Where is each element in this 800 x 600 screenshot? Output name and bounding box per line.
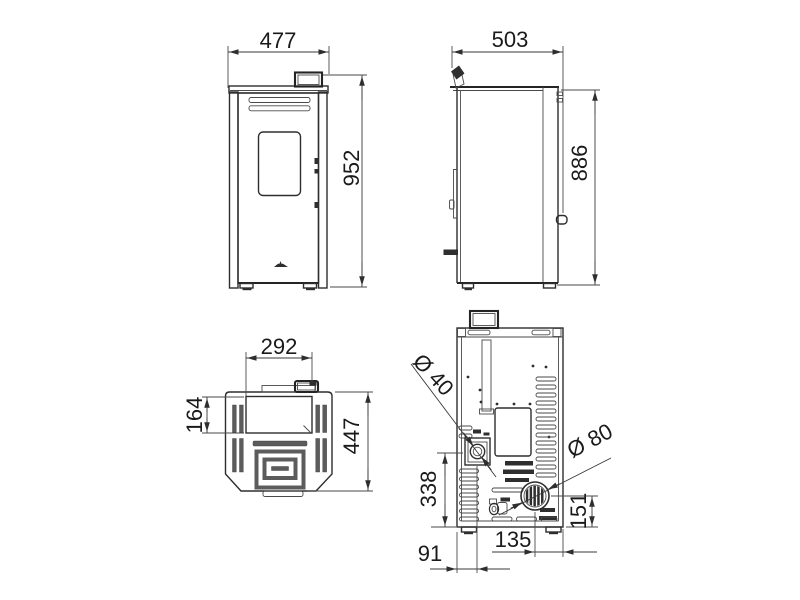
side-feet bbox=[463, 284, 556, 291]
side-door-edge bbox=[450, 170, 458, 219]
dim-label-inlet-offset: 91 bbox=[418, 543, 442, 565]
back-screw-dots bbox=[465, 365, 551, 439]
front-logo-mark bbox=[274, 261, 288, 267]
front-view bbox=[229, 73, 328, 291]
side-handle bbox=[451, 66, 465, 89]
back-drain-fitting bbox=[489, 498, 510, 515]
dim-label-hopper-width: 292 bbox=[261, 336, 298, 358]
front-side-panel-right bbox=[319, 92, 328, 288]
dim-label-hopper-depth: 164 bbox=[184, 397, 206, 434]
top-hopper-lid bbox=[246, 397, 312, 434]
front-side-panel-left bbox=[230, 92, 239, 288]
back-flue-outlet bbox=[521, 482, 549, 510]
top-rear-tab bbox=[263, 491, 303, 497]
side-scraper-handle bbox=[444, 250, 459, 256]
back-view bbox=[457, 311, 563, 534]
dim-label-flue-offset: 135 bbox=[495, 529, 532, 551]
front-door-window bbox=[259, 132, 301, 196]
dim-label-front-width: 477 bbox=[260, 30, 297, 52]
dim-label-side-depth: 503 bbox=[492, 29, 529, 51]
dim-label-inlet-height: 338 bbox=[418, 471, 440, 508]
side-view bbox=[444, 66, 568, 291]
front-vent-slots bbox=[249, 98, 310, 111]
dim-label-top-depth: 447 bbox=[341, 418, 363, 455]
dim-label-side-height: 886 bbox=[569, 145, 591, 182]
back-air-inlet bbox=[465, 438, 490, 465]
top-center-grille bbox=[253, 441, 307, 488]
top-view bbox=[226, 381, 333, 497]
drawing-linework bbox=[0, 0, 800, 600]
front-body bbox=[238, 93, 319, 283]
dim-label-front-height: 952 bbox=[341, 150, 363, 187]
back-access-opening bbox=[495, 408, 531, 456]
stove-dimension-drawing: 477 952 503 886 292 164 447 Ø 40 Ø 80 33… bbox=[0, 0, 800, 600]
dim-label-flue-height: 151 bbox=[568, 493, 590, 530]
front-feet bbox=[240, 284, 317, 291]
back-channel bbox=[482, 340, 491, 411]
